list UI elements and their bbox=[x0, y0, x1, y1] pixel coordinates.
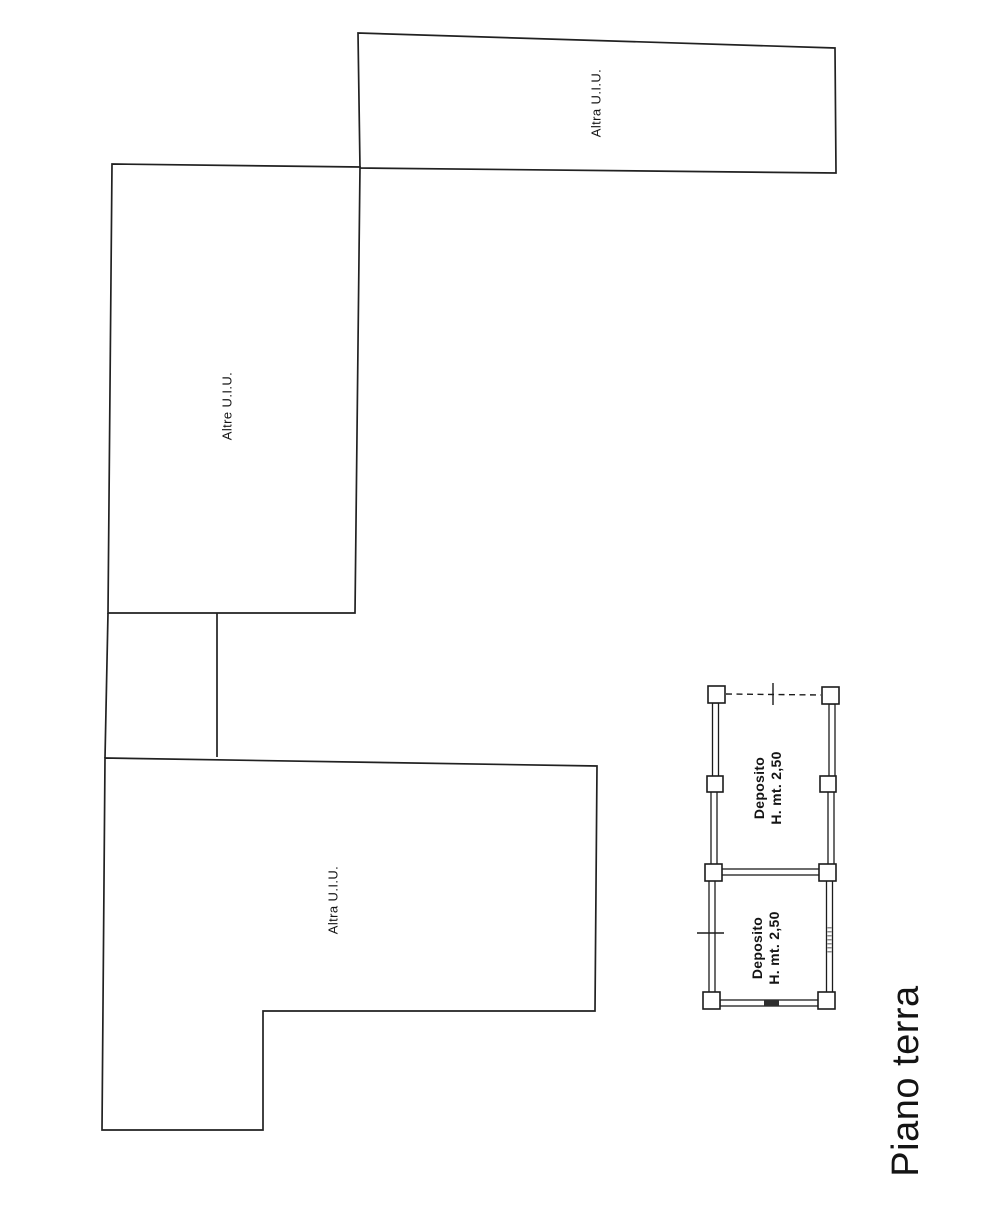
deposito-wall-left-upper bbox=[713, 703, 719, 777]
deposito-upper-name-label: Deposito bbox=[751, 757, 767, 819]
deposito-bottom-wall-block bbox=[764, 1000, 779, 1006]
deposito-wall-left-mid bbox=[711, 791, 717, 865]
pillar-mid-left bbox=[707, 776, 723, 792]
deposito-upper-height-label: H. mt. 2,50 bbox=[768, 751, 784, 824]
unit-middle-label: Altre U.I.U. bbox=[220, 372, 235, 440]
deposito-wall-right-upper bbox=[829, 704, 835, 777]
unit-bottom-label: Altra U.I.U. bbox=[326, 866, 341, 934]
deposito-lower-height-label: H. mt. 2,50 bbox=[766, 911, 782, 984]
pillar-junction-right bbox=[819, 864, 836, 881]
pillar-mid-right bbox=[820, 776, 836, 792]
deposito-divider-wall bbox=[721, 869, 820, 875]
pillar-bottom-left bbox=[703, 992, 720, 1009]
floor-title: Piano terra bbox=[885, 985, 927, 1177]
floor-plan-page: Altra U.I.U. Altre U.I.U. Altra U.I.U. D… bbox=[0, 0, 996, 1216]
deposito-lower-name-label: Deposito bbox=[749, 917, 765, 979]
corridor-wall-left bbox=[105, 613, 108, 758]
pillar-top-right bbox=[822, 687, 839, 704]
floor-plan-canvas: Altra U.I.U. Altre U.I.U. Altra U.I.U. D… bbox=[0, 0, 996, 1216]
pillar-bottom-right bbox=[818, 992, 835, 1009]
pillar-junction-left bbox=[705, 864, 722, 881]
deposito-wall-left-lower bbox=[709, 880, 715, 993]
unit-top-label: Altra U.I.U. bbox=[589, 69, 604, 137]
deposito-wall-right-mid bbox=[828, 791, 834, 865]
pillar-top-left bbox=[708, 686, 725, 703]
unit-bottom-outline bbox=[102, 758, 597, 1130]
